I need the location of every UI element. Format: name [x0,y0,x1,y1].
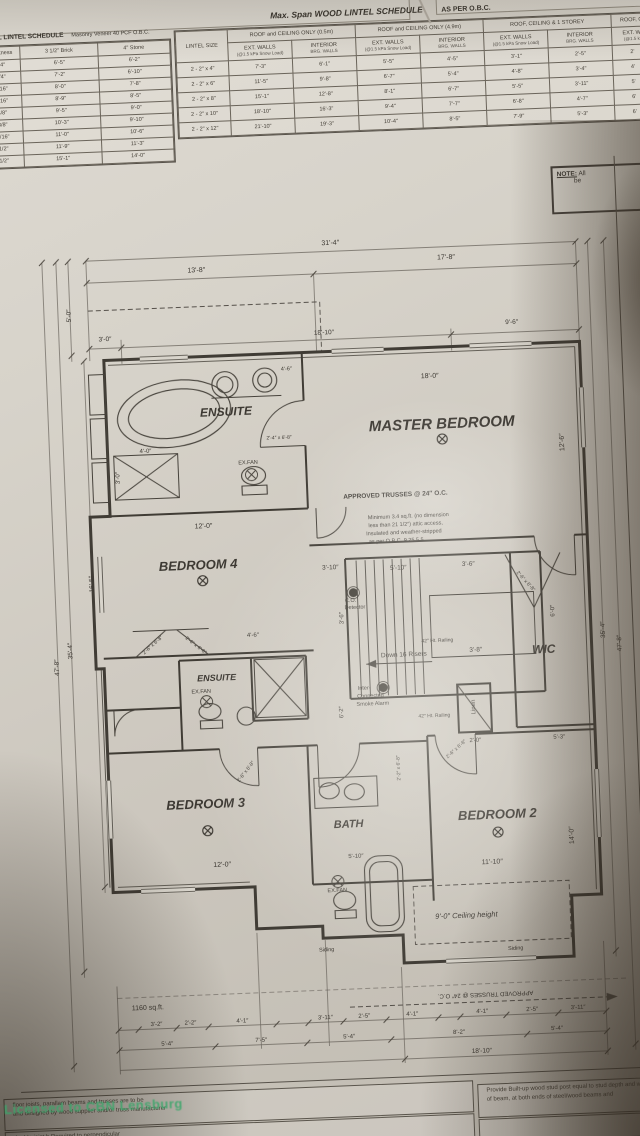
dim-label: 4'-1″ [476,1009,488,1015]
dim-label: 3'-0″ [98,337,111,344]
dim-label: 4'-1″ [236,1018,248,1024]
door-size-label: 2'-6″ x 6'-8″ [142,635,164,656]
door-size-label: 2'-2″ x 6'-8″ [396,755,402,780]
dim-label: 2'-2″ [184,1020,196,1026]
room-label-bedroom-4: BEDROOM 4 [159,557,238,573]
dim-label: 3'-0″ [115,472,121,484]
dim-label: 18'-0″ [421,373,439,381]
dim-label: 2'-5″ [526,1007,538,1013]
dim-label: 14'-0″ [568,826,576,844]
dim-label: 2'-5″ [358,1013,370,1019]
door-size-label: 2'-6″ x 6'-8″ [446,739,468,760]
note-co-detector: Detector [344,605,365,611]
door-size-label: 2'-6″ x 6'-8″ [237,761,256,784]
note-smoke-alarm: Smoke Alarm [356,702,389,709]
room-label-ensuite-master: ENSUITE [200,405,252,419]
note-approved-trusses: APPROVED TRUSSES @ 24″ O.C. [343,491,448,502]
dim-label: 18'-10″ [314,330,334,337]
drawing-sheet: Max. Span WOOD LINTEL SCHEDULE AS PER O.… [0,0,640,1136]
dim-label: 3'-11″ [318,1015,333,1022]
photo-of-floor-plan: Max. Span WOOD LINTEL SCHEDULE AS PER O.… [0,0,640,1136]
note-attic-access: as per O.B.C. 9.25.5.5 [369,538,424,546]
note-railing: 42″ Ht. Railing [418,713,450,719]
note-railing: 42″ Ht. Railing [421,638,453,644]
dim-label: 12'-6″ [559,433,567,451]
plan-labels-layer: ENSUITEMASTER BEDROOMBEDROOM 4ENSUITEWIC… [0,0,640,1136]
dim-label: 2'-0″ [469,738,481,744]
door-size-label: 2'-6″ x 6'-8″ [184,636,207,655]
dim-label: 5'-3″ [553,734,565,740]
dim-label: 5'-10″ [390,565,407,572]
dim-label: 3'-2″ [150,1022,162,1028]
dim-label: 6'-2″ [339,706,345,718]
note-exfan: EX.FAN [191,690,211,696]
dim-label: 3'-8″ [469,647,482,654]
dim-label: 4'-1″ [406,1011,418,1017]
note-siding: Siding [508,946,524,952]
room-label-linen: Linen [471,699,478,714]
dim-label: 3'-6″ [462,562,475,569]
door-size-label: 2'-6″ x 6'-8″ [515,571,536,593]
dim-label: 47'-8″ [55,659,62,676]
dim-label: 4'-0″ [139,449,151,455]
room-label-bath: BATH [334,819,364,831]
dim-label: 35'-4″ [600,621,607,638]
dim-label: 35'-4″ [68,643,75,660]
dim-label: 5'-10″ [348,853,364,860]
dim-label: 8'-2″ [453,1030,465,1036]
note-ceiling-height: 9'-0″ Ceiling height [435,910,498,920]
dim-label: 5'-4″ [551,1026,563,1032]
note-approved-trusses: APPROVED TRUSSES @ 24″ O.C. [438,989,534,999]
dim-label: 11'-10″ [482,858,503,866]
note-siding: Siding [319,948,335,954]
dim-label: 5'-4″ [161,1041,173,1047]
dim-label: 16'-5″ [89,576,96,593]
note-stairs-down: Down 16 Risers [381,652,427,660]
dim-label: 3'-6″ [339,612,345,624]
dim-label: 17'-8″ [437,254,455,262]
room-label-ensuite-2: ENSUITE [197,673,236,684]
room-label-wic: WIC [532,643,556,656]
dim-label: 5'-0″ [66,309,73,322]
dim-label: 3'-11″ [571,1005,586,1012]
dim-label: 18'-10″ [472,1048,492,1055]
dim-label: 31'-4″ [321,239,339,247]
note-smoke-alarm: Inter- [358,686,371,692]
room-label-bedroom-3: BEDROOM 3 [166,796,245,812]
note-smoke-alarm: Connected [357,694,384,701]
dim-label: 7'-5″ [255,1038,267,1044]
room-label-bedroom-2: BEDROOM 2 [458,806,537,822]
dim-label: 3'-10″ [322,565,339,572]
room-label-master-bedroom: MASTER BEDROOM [368,414,514,435]
dim-label: 4'-6″ [247,633,259,639]
dim-label: 5'-4″ [343,1034,355,1040]
dim-label: 12'-0″ [213,861,231,869]
door-size-label: 2'-4″ x 6'-8″ [266,436,291,442]
dim-label: 12'-0″ [195,523,213,531]
dim-label: 4'-6″ [281,367,292,373]
note-attic-access: Insulated and weather-stripped [366,529,442,538]
dim-label: 9'-6″ [505,320,518,327]
note-exfan: EX.FAN [327,888,347,894]
note-exfan: EX.FAN [238,461,258,467]
dim-label: 13'-8″ [187,267,205,275]
dim-label: 6'-0″ [550,605,556,617]
dim-label: 47'-8″ [617,635,624,652]
note-area: 1160 sq.ft. [132,1004,164,1012]
